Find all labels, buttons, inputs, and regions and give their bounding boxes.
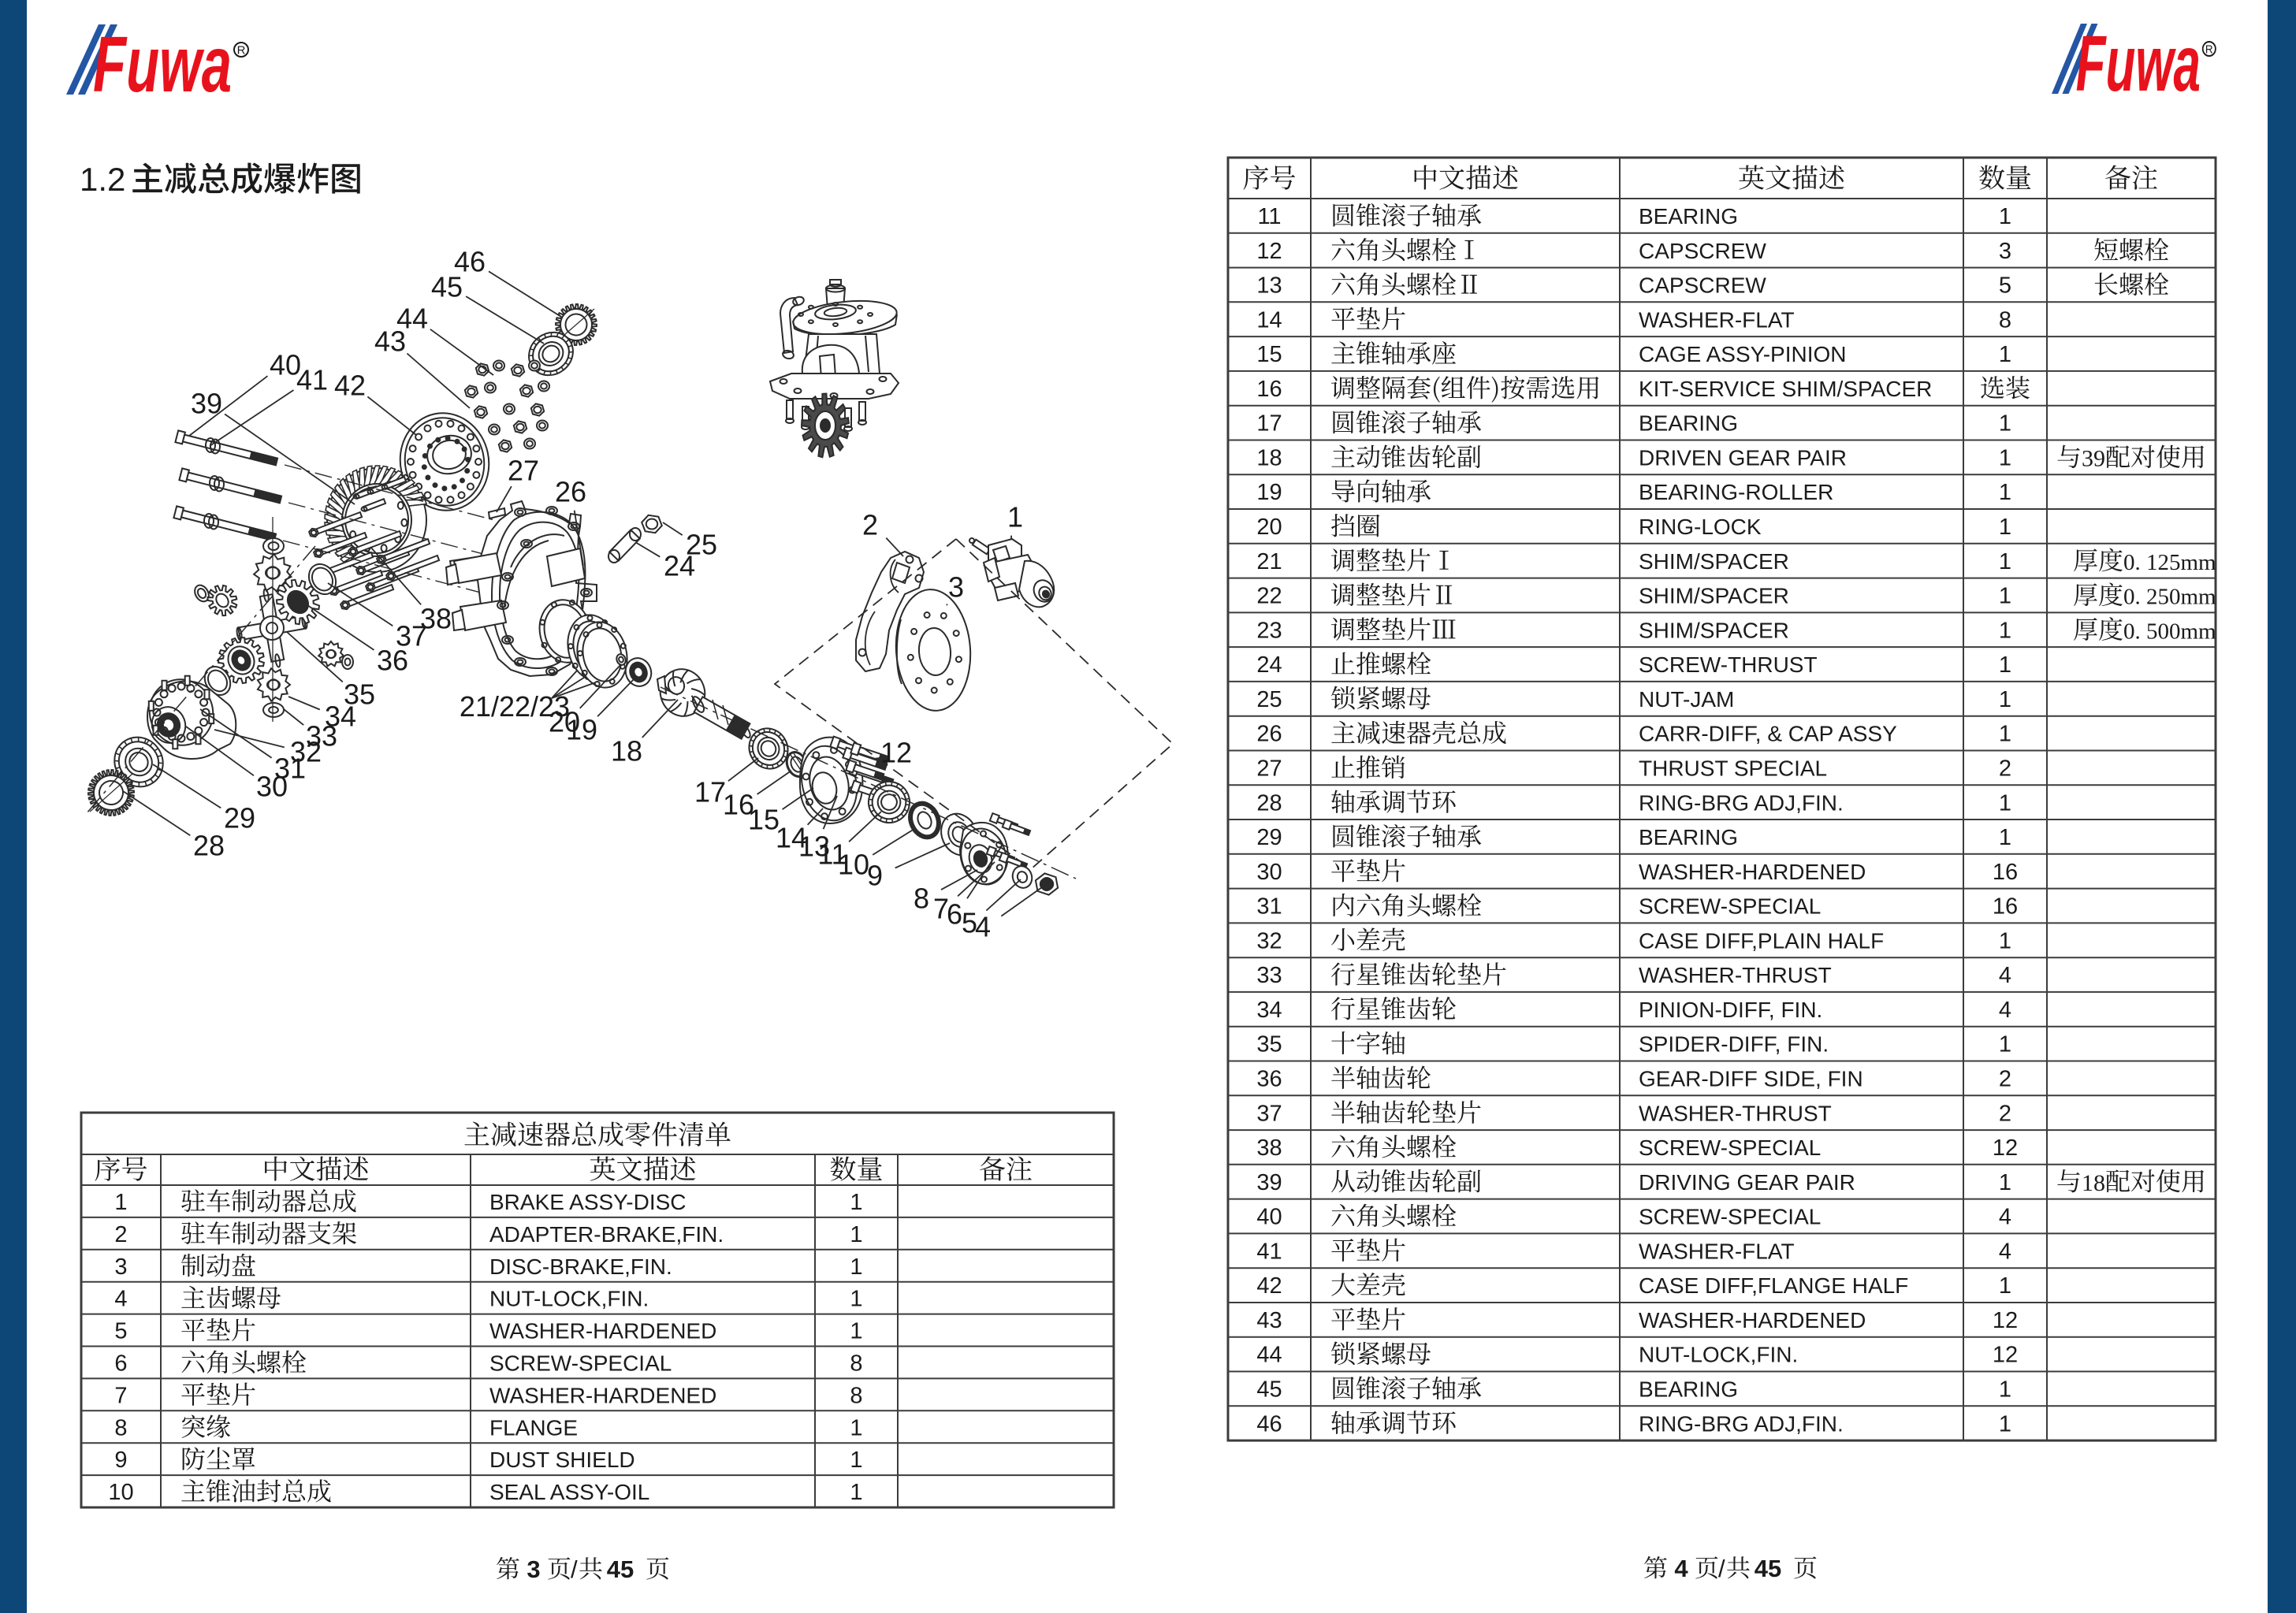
svg-text:16: 16 (1993, 894, 2018, 920)
svg-text:28: 28 (1256, 790, 1282, 816)
svg-text:1: 1 (1999, 204, 2011, 229)
svg-text:SCREW-SPECIAL: SCREW-SPECIAL (489, 1351, 672, 1376)
svg-text:5: 5 (1999, 273, 2011, 299)
svg-text:27: 27 (508, 455, 539, 487)
svg-text:2: 2 (862, 509, 878, 541)
svg-text:20: 20 (1256, 515, 1282, 540)
svg-text:1: 1 (850, 1190, 862, 1215)
svg-text:42: 42 (1256, 1273, 1282, 1299)
svg-text:2: 2 (1999, 1067, 2011, 1092)
svg-text:1: 1 (1999, 790, 2011, 816)
svg-text:CAGE ASSY-PINION: CAGE ASSY-PINION (1639, 342, 1847, 366)
svg-text:GEAR-DIFF SIDE, FIN: GEAR-DIFF SIDE, FIN (1639, 1067, 1863, 1091)
svg-text:BEARING: BEARING (1639, 825, 1738, 849)
svg-text:4: 4 (1999, 963, 2011, 988)
svg-text:18: 18 (1256, 446, 1282, 471)
svg-text:36: 36 (377, 645, 408, 677)
svg-text:16: 16 (1256, 377, 1282, 402)
svg-text:36: 36 (1256, 1067, 1282, 1092)
svg-text:1: 1 (850, 1480, 862, 1505)
svg-text:34: 34 (1256, 998, 1282, 1023)
svg-text:1: 1 (1999, 549, 2011, 574)
svg-text:SPIDER-DIFF, FIN.: SPIDER-DIFF, FIN. (1639, 1032, 1829, 1057)
svg-text:1: 1 (1999, 825, 2011, 850)
svg-text:33: 33 (1256, 963, 1282, 988)
svg-text:25: 25 (1256, 687, 1282, 712)
svg-text:24: 24 (1256, 652, 1282, 678)
svg-text:BRAKE ASSY-DISC: BRAKE ASSY-DISC (489, 1190, 687, 1214)
svg-text:14: 14 (1256, 307, 1282, 333)
svg-text:8: 8 (114, 1415, 127, 1440)
svg-text:12: 12 (1256, 239, 1282, 264)
svg-text:1: 1 (1999, 1411, 2011, 1436)
svg-text:30: 30 (256, 771, 288, 803)
svg-text:CAPSCREW: CAPSCREW (1639, 273, 1766, 298)
svg-text:6: 6 (114, 1351, 127, 1377)
svg-text:29: 29 (224, 802, 255, 834)
svg-text:SHIM/SPACER: SHIM/SPACER (1639, 549, 1789, 574)
svg-text:3: 3 (1999, 239, 2011, 264)
svg-text:12: 12 (1993, 1135, 2018, 1161)
svg-text:17: 17 (1256, 411, 1282, 437)
svg-text:DRIVING GEAR PAIR: DRIVING GEAR PAIR (1639, 1170, 1855, 1195)
svg-text:6: 6 (947, 898, 962, 931)
svg-text:1: 1 (1999, 652, 2011, 678)
svg-text:1: 1 (1999, 1032, 2011, 1057)
svg-text:21/22/23: 21/22/23 (460, 690, 570, 723)
svg-text:1: 1 (1999, 446, 2011, 471)
svg-text:1: 1 (850, 1448, 862, 1473)
svg-text:4: 4 (1999, 1205, 2011, 1230)
svg-text:19: 19 (566, 714, 597, 746)
svg-text:10: 10 (108, 1480, 133, 1505)
svg-text:/: / (1718, 1555, 1725, 1582)
svg-text:1: 1 (1999, 722, 2011, 747)
svg-text:0. 125mm: 0. 125mm (2123, 550, 2216, 575)
svg-text:42: 42 (334, 370, 366, 402)
svg-text:Fuwa: Fuwa (2076, 20, 2201, 108)
svg-text:39: 39 (191, 388, 222, 420)
svg-text:43: 43 (374, 325, 406, 358)
svg-text:SHIM/SPACER: SHIM/SPACER (1639, 618, 1789, 642)
svg-text:2: 2 (1999, 1101, 2011, 1126)
svg-text:2: 2 (1999, 756, 2011, 782)
svg-text:NUT-LOCK,FIN.: NUT-LOCK,FIN. (489, 1287, 649, 1311)
svg-text:18: 18 (2082, 1170, 2105, 1196)
svg-text:WASHER-THRUST: WASHER-THRUST (1639, 963, 1832, 987)
svg-text:31: 31 (1256, 894, 1282, 920)
svg-text:FLANGE: FLANGE (489, 1415, 578, 1440)
svg-text:1.2: 1.2 (80, 161, 125, 198)
svg-text:/: / (571, 1555, 578, 1583)
svg-text:SCREW-SPECIAL: SCREW-SPECIAL (1639, 1205, 1821, 1229)
svg-text:1: 1 (1999, 480, 2011, 505)
svg-text:8: 8 (1999, 307, 2011, 333)
svg-text:23: 23 (1256, 618, 1282, 643)
svg-text:26: 26 (1256, 722, 1282, 747)
svg-text:37: 37 (1256, 1101, 1282, 1126)
svg-text:SCREW-THRUST: SCREW-THRUST (1639, 652, 1818, 677)
svg-text:15: 15 (1256, 342, 1282, 367)
svg-text:1: 1 (1999, 618, 2011, 643)
svg-text:35: 35 (1256, 1032, 1282, 1057)
svg-text:0. 500mm: 0. 500mm (2123, 619, 2216, 644)
svg-text:3: 3 (948, 571, 964, 604)
svg-text:12: 12 (880, 737, 912, 769)
svg-text:NUT-LOCK,FIN.: NUT-LOCK,FIN. (1639, 1343, 1798, 1367)
svg-text:1: 1 (1999, 515, 2011, 540)
svg-text:12: 12 (1993, 1308, 2018, 1333)
svg-text:WASHER-FLAT: WASHER-FLAT (1639, 307, 1795, 332)
svg-text:29: 29 (1256, 825, 1282, 850)
svg-text:NUT-JAM: NUT-JAM (1639, 687, 1734, 712)
svg-text:0. 250mm: 0. 250mm (2123, 585, 2216, 610)
svg-text:1: 1 (850, 1222, 862, 1247)
svg-text:1: 1 (1999, 687, 2011, 712)
svg-text:1: 1 (1999, 584, 2011, 609)
svg-text:4: 4 (1674, 1555, 1688, 1582)
svg-text:WASHER-THRUST: WASHER-THRUST (1639, 1101, 1832, 1125)
svg-text:26: 26 (555, 476, 586, 508)
svg-text:CASE DIFF,FLANGE HALF: CASE DIFF,FLANGE HALF (1639, 1273, 1908, 1298)
svg-text:WASHER-HARDENED: WASHER-HARDENED (489, 1319, 716, 1344)
svg-text:THRUST SPECIAL: THRUST SPECIAL (1639, 756, 1827, 781)
svg-text:13: 13 (1256, 273, 1282, 299)
svg-text:PINION-DIFF, FIN.: PINION-DIFF, FIN. (1639, 998, 1822, 1022)
svg-text:41: 41 (1256, 1239, 1282, 1264)
svg-text:10: 10 (838, 849, 869, 881)
svg-text:2: 2 (114, 1222, 127, 1247)
svg-text:BEARING: BEARING (1639, 204, 1738, 229)
svg-text:4: 4 (975, 911, 991, 943)
svg-text:1: 1 (1999, 928, 2011, 953)
svg-text:19: 19 (1256, 480, 1282, 505)
svg-text:41: 41 (296, 364, 328, 396)
svg-text:WASHER-FLAT: WASHER-FLAT (1639, 1239, 1795, 1263)
svg-text:4: 4 (114, 1287, 127, 1312)
svg-text:1: 1 (850, 1415, 862, 1440)
svg-text:SCREW-SPECIAL: SCREW-SPECIAL (1639, 894, 1821, 919)
svg-text:RING-BRG ADJ,FIN.: RING-BRG ADJ,FIN. (1639, 790, 1844, 815)
svg-text:45: 45 (1755, 1555, 1781, 1582)
svg-text:8: 8 (850, 1383, 862, 1408)
svg-text:45: 45 (607, 1555, 634, 1583)
svg-text:BEARING-ROLLER: BEARING-ROLLER (1639, 480, 1833, 504)
svg-text:11: 11 (1257, 204, 1281, 229)
svg-text:1: 1 (850, 1254, 862, 1280)
svg-text:9: 9 (114, 1448, 127, 1473)
svg-text:BEARING: BEARING (1639, 1377, 1738, 1402)
svg-text:R: R (237, 44, 246, 58)
svg-text:4: 4 (1999, 1239, 2011, 1264)
svg-text:28: 28 (193, 830, 225, 862)
svg-text:1: 1 (1999, 1273, 2011, 1299)
svg-text:Fuwa: Fuwa (93, 20, 232, 109)
svg-text:WASHER-HARDENED: WASHER-HARDENED (1639, 860, 1866, 884)
svg-text:24: 24 (664, 550, 695, 582)
svg-text:SHIM/SPACER: SHIM/SPACER (1639, 584, 1789, 608)
svg-text:9: 9 (867, 860, 883, 892)
svg-text:21: 21 (1256, 549, 1282, 574)
svg-text:17: 17 (694, 776, 726, 808)
svg-text:DISC-BRAKE,FIN.: DISC-BRAKE,FIN. (489, 1254, 672, 1279)
svg-text:1: 1 (1999, 1170, 2011, 1195)
svg-text:43: 43 (1256, 1308, 1282, 1333)
svg-text:45: 45 (431, 271, 463, 303)
svg-text:18: 18 (611, 735, 642, 767)
svg-text:1: 1 (1999, 342, 2011, 367)
svg-text:44: 44 (1256, 1343, 1282, 1368)
svg-text:RING-LOCK: RING-LOCK (1639, 515, 1762, 539)
svg-text:3: 3 (114, 1254, 127, 1280)
svg-text:32: 32 (1256, 928, 1282, 953)
svg-text:27: 27 (1256, 756, 1282, 782)
svg-text:8: 8 (850, 1351, 862, 1377)
svg-text:CARR-DIFF, & CAP ASSY: CARR-DIFF, & CAP ASSY (1639, 722, 1897, 746)
svg-text:WASHER-HARDENED: WASHER-HARDENED (489, 1383, 716, 1407)
svg-text:BEARING: BEARING (1639, 411, 1738, 436)
svg-text:7: 7 (114, 1383, 127, 1408)
svg-text:CASE DIFF,PLAIN HALF: CASE DIFF,PLAIN HALF (1639, 928, 1884, 953)
svg-text:38: 38 (1256, 1135, 1282, 1161)
svg-text:46: 46 (1256, 1411, 1282, 1436)
svg-text:DUST SHIELD: DUST SHIELD (489, 1448, 635, 1472)
svg-text:KIT-SERVICE SHIM/SPACER: KIT-SERVICE SHIM/SPACER (1639, 377, 1932, 401)
svg-text:SEAL ASSY-OIL: SEAL ASSY-OIL (489, 1480, 649, 1504)
svg-text:1: 1 (1999, 411, 2011, 437)
svg-text:39: 39 (2082, 446, 2105, 472)
svg-text:4: 4 (1999, 998, 2011, 1023)
svg-text:1: 1 (1999, 1377, 2011, 1403)
svg-text:3: 3 (527, 1555, 540, 1583)
svg-text:WASHER-HARDENED: WASHER-HARDENED (1639, 1308, 1866, 1332)
svg-text:40: 40 (1256, 1205, 1282, 1230)
svg-text:45: 45 (1256, 1377, 1282, 1403)
svg-text:22: 22 (1256, 584, 1282, 609)
svg-text:CAPSCREW: CAPSCREW (1639, 239, 1766, 263)
svg-text:1: 1 (850, 1287, 862, 1312)
svg-text:39: 39 (1256, 1170, 1282, 1195)
svg-text:1: 1 (1007, 501, 1023, 533)
svg-text:SCREW-SPECIAL: SCREW-SPECIAL (1639, 1135, 1821, 1160)
svg-text:8: 8 (914, 883, 929, 915)
svg-text:R: R (2205, 43, 2213, 57)
svg-text:RING-BRG ADJ,FIN.: RING-BRG ADJ,FIN. (1639, 1411, 1844, 1436)
svg-text:12: 12 (1993, 1343, 2018, 1368)
svg-text:1: 1 (850, 1319, 862, 1344)
svg-text:1: 1 (114, 1190, 127, 1215)
svg-text:30: 30 (1256, 860, 1282, 885)
svg-text:ADAPTER-BRAKE,FIN.: ADAPTER-BRAKE,FIN. (489, 1222, 724, 1247)
svg-text:5: 5 (114, 1319, 127, 1344)
svg-text:16: 16 (1993, 860, 2018, 885)
svg-text:DRIVEN GEAR PAIR: DRIVEN GEAR PAIR (1639, 446, 1847, 470)
